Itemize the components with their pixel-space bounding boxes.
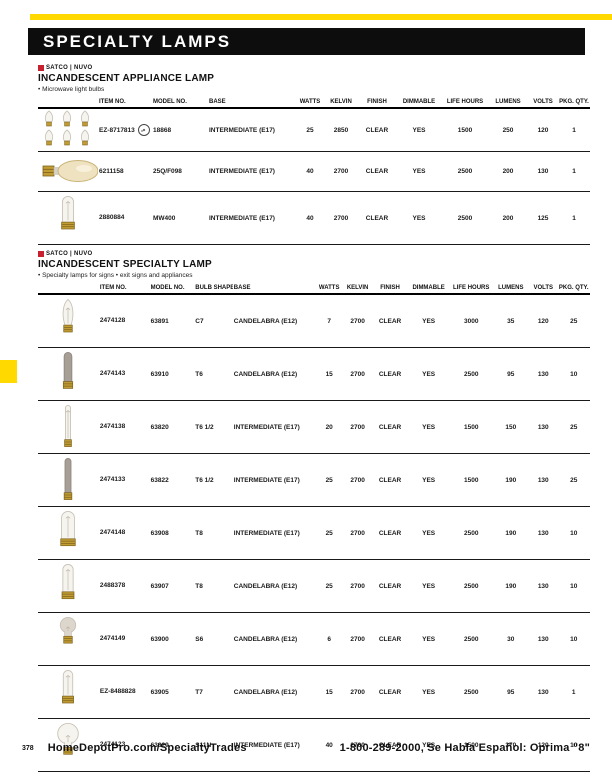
column-header-base: BASE (208, 97, 296, 108)
product-image-cell (38, 348, 99, 401)
cell-dimmable: YES (396, 152, 442, 192)
cell-life_hours: 2500 (450, 507, 493, 560)
certification-badge-icon (138, 124, 150, 136)
cell-lumens: 95 (493, 348, 530, 401)
product-image-cell (38, 613, 99, 666)
cell-life_hours: 2500 (450, 666, 493, 719)
column-header-model: MODEL NO. (150, 283, 195, 294)
cell-watts: 20 (316, 401, 342, 454)
cell-volts: 130 (529, 507, 557, 560)
cell-item: EZ-8488828 (99, 666, 150, 719)
cell-bulb_shape: T8 (194, 507, 233, 560)
section-incandescent-appliance-lamp: SATCO | NUVO INCANDESCENT APPLIANCE LAMP… (38, 64, 590, 245)
column-header-pkg_qty: PKG. QTY. (557, 283, 590, 294)
cell-dimmable: YES (407, 401, 450, 454)
item-number: 2474138 (100, 423, 125, 430)
cell-volts: 125 (528, 192, 558, 245)
cell-pkg_qty: 25 (557, 294, 590, 348)
cell-dimmable: YES (407, 507, 450, 560)
column-header-volts: VOLTS (529, 283, 557, 294)
cell-dimmable: YES (407, 560, 450, 613)
cell-pkg_qty: 1 (558, 192, 590, 245)
cell-item: 2474149 (99, 613, 150, 666)
item-number: 6211158 (99, 168, 124, 175)
cell-finish: CLEAR (358, 152, 396, 192)
column-header-dimmable: DIMMABLE (396, 97, 442, 108)
table-header-row: ITEM NO.MODEL NO.BASEWATTSKELVINFINISHDI… (38, 97, 590, 108)
cell-lumens: 150 (493, 401, 530, 454)
cell-finish: CLEAR (373, 560, 408, 613)
table-header-row: ITEM NO.MODEL NO.BULB SHAPEBASEWATTSKELV… (38, 283, 590, 294)
cell-dimmable: YES (407, 454, 450, 507)
column-header-model: MODEL NO. (152, 97, 208, 108)
cell-model: 25Q/F098 (152, 152, 208, 192)
cell-life_hours: 2500 (450, 560, 493, 613)
cell-bulb_shape: C7 (194, 294, 233, 348)
cell-dimmable: YES (396, 192, 442, 245)
cell-lumens: 190 (493, 507, 530, 560)
column-header-img (38, 97, 98, 108)
cell-dimmable: YES (407, 348, 450, 401)
column-header-kelvin: KELVIN (342, 283, 372, 294)
cell-life_hours: 2500 (442, 152, 488, 192)
product-image-cell (38, 454, 99, 507)
appliance-lamp-table: ITEM NO.MODEL NO.BASEWATTSKELVINFINISHDI… (38, 97, 590, 245)
cell-watts: 15 (316, 348, 342, 401)
section-bullet: • Microwave light bulbs (38, 85, 590, 94)
cell-lumens: 250 (488, 108, 528, 152)
cell-model: 63900 (150, 613, 195, 666)
cell-kelvin: 2700 (342, 454, 372, 507)
cell-finish: CLEAR (373, 666, 408, 719)
cell-watts: 7 (316, 294, 342, 348)
cell-base: CANDELABRA (E12) (233, 613, 316, 666)
cell-lumens: 95 (493, 666, 530, 719)
cell-base: CANDELABRA (E12) (233, 348, 316, 401)
table-row: 247413863820T6 1/2INTERMEDIATE (E17)2027… (38, 401, 590, 454)
cell-kelvin: 2700 (342, 507, 372, 560)
specialty-lamp-table: ITEM NO.MODEL NO.BULB SHAPEBASEWATTSKELV… (38, 283, 590, 772)
table-row: EZ-871781318868INTERMEDIATE (E17)252850C… (38, 108, 590, 152)
product-image-cell (38, 108, 98, 152)
cell-volts: 130 (529, 401, 557, 454)
cell-watts: 6 (316, 613, 342, 666)
item-number: 2474133 (100, 476, 125, 483)
cell-life_hours: 1500 (450, 401, 493, 454)
table-row: 247414863908T8INTERMEDIATE (E17)252700CL… (38, 507, 590, 560)
product-image-cell (38, 152, 98, 192)
cell-model: 18868 (152, 108, 208, 152)
cell-volts: 130 (529, 454, 557, 507)
cell-kelvin: 2700 (342, 666, 372, 719)
column-header-lumens: LUMENS (493, 283, 530, 294)
cell-kelvin: 2850 (324, 108, 358, 152)
cell-kelvin: 2700 (342, 348, 372, 401)
cell-finish: CLEAR (373, 507, 408, 560)
cell-finish: CLEAR (373, 613, 408, 666)
cell-kelvin: 2700 (342, 560, 372, 613)
section-heading: INCANDESCENT APPLIANCE LAMP (38, 73, 590, 85)
cell-dimmable: YES (407, 613, 450, 666)
cell-kelvin: 2700 (342, 294, 372, 348)
cell-item: EZ-8717813 (98, 108, 152, 152)
product-image-cell (38, 666, 99, 719)
bulb-image-t6-gray-tube (48, 349, 88, 397)
column-header-item: ITEM NO. (99, 283, 150, 294)
cell-base: INTERMEDIATE (E17) (233, 507, 316, 560)
bulb-image-mini-bulb-six-pack (39, 110, 97, 148)
cell-finish: CLEAR (373, 294, 408, 348)
cell-base: CANDELABRA (E12) (233, 294, 316, 348)
yellow-side-tab (0, 360, 17, 383)
cell-pkg_qty: 10 (557, 348, 590, 401)
column-header-watts: WATTS (316, 283, 342, 294)
cell-dimmable: YES (396, 108, 442, 152)
page-title: SPECIALTY LAMPS (28, 32, 231, 52)
table-row: EZ-848882863905T7CANDELABRA (E12)152700C… (38, 666, 590, 719)
cell-watts: 25 (316, 454, 342, 507)
cell-volts: 130 (529, 560, 557, 613)
cell-finish: CLEAR (358, 192, 396, 245)
bulb-image-appliance-tube-bulb (48, 193, 88, 241)
cell-bulb_shape: T6 (194, 348, 233, 401)
item-number: 2474143 (100, 370, 125, 377)
brand-line: SATCO | NUVO (38, 64, 590, 72)
cell-watts: 40 (296, 152, 324, 192)
cell-item: 6211158 (98, 152, 152, 192)
cell-life_hours: 2500 (450, 348, 493, 401)
cell-watts: 25 (296, 108, 324, 152)
table-row: 2880884MW400INTERMEDIATE (E17)402700CLEA… (38, 192, 590, 245)
table-row: 248837863907T8CANDELABRA (E12)252700CLEA… (38, 560, 590, 613)
product-image-cell (38, 294, 99, 348)
cell-watts: 25 (316, 560, 342, 613)
cell-pkg_qty: 1 (558, 108, 590, 152)
bulb-image-t7-tube (48, 667, 88, 715)
cell-kelvin: 2700 (324, 152, 358, 192)
cell-bulb_shape: S6 (194, 613, 233, 666)
item-number: EZ-8488828 (100, 688, 136, 695)
cell-lumens: 200 (488, 192, 528, 245)
cell-life_hours: 2500 (450, 613, 493, 666)
cell-base: CANDELABRA (E12) (233, 560, 316, 613)
cell-base: INTERMEDIATE (E17) (208, 108, 296, 152)
cell-model: 63908 (150, 507, 195, 560)
cell-item: 2488378 (99, 560, 150, 613)
cell-volts: 130 (529, 666, 557, 719)
cell-finish: CLEAR (358, 108, 396, 152)
cell-pkg_qty: 25 (557, 454, 590, 507)
brand-logo-icon (38, 65, 44, 71)
column-header-item: ITEM NO. (98, 97, 152, 108)
bulb-image-t65-thin-tube (48, 402, 88, 450)
bulb-image-t65-gray-thin-tube (48, 455, 88, 503)
cell-watts: 15 (316, 666, 342, 719)
cell-bulb_shape: T6 1/2 (194, 401, 233, 454)
bulb-image-t8-wide-tube (48, 508, 88, 556)
item-number: 2474148 (100, 529, 125, 536)
item-number: EZ-8717813 (99, 127, 135, 134)
cell-volts: 130 (528, 152, 558, 192)
cell-pkg_qty: 25 (557, 401, 590, 454)
item-number: 2474128 (100, 317, 125, 324)
column-header-volts: VOLTS (528, 97, 558, 108)
bulb-image-t8-tube (48, 561, 88, 609)
cell-base: INTERMEDIATE (E17) (233, 454, 316, 507)
cell-item: 2474128 (99, 294, 150, 348)
brand-name: SATCO | NUVO (46, 65, 93, 71)
cell-life_hours: 2500 (442, 192, 488, 245)
cell-item: 2474148 (99, 507, 150, 560)
cell-lumens: 30 (493, 613, 530, 666)
cell-lumens: 200 (488, 152, 528, 192)
cell-item: 2474138 (99, 401, 150, 454)
cell-bulb_shape: T6 1/2 (194, 454, 233, 507)
page-number: 378 (22, 745, 34, 752)
section-bullet: • Specialty lamps for signs • exit signs… (38, 271, 590, 280)
product-image-cell (38, 401, 99, 454)
cell-volts: 120 (529, 294, 557, 348)
cell-base: INTERMEDIATE (E17) (233, 401, 316, 454)
cell-model: 63907 (150, 560, 195, 613)
page-title-bar: SPECIALTY LAMPS (28, 28, 585, 55)
cell-kelvin: 2700 (342, 613, 372, 666)
cell-base: INTERMEDIATE (E17) (208, 192, 296, 245)
cell-base: CANDELABRA (E12) (233, 666, 316, 719)
cell-dimmable: YES (407, 666, 450, 719)
cell-pkg_qty: 10 (557, 560, 590, 613)
table-row: 621115825Q/F098INTERMEDIATE (E17)402700C… (38, 152, 590, 192)
cell-finish: CLEAR (373, 401, 408, 454)
cell-life_hours: 1500 (442, 108, 488, 152)
cell-life_hours: 1500 (450, 454, 493, 507)
cell-model: MW400 (152, 192, 208, 245)
column-header-finish: FINISH (358, 97, 396, 108)
cell-watts: 25 (316, 507, 342, 560)
bulb-image-s6-round (48, 614, 88, 662)
brand-line: SATCO | NUVO (38, 250, 590, 258)
brand-logo-icon (38, 251, 44, 257)
cell-volts: 130 (529, 348, 557, 401)
column-header-watts: WATTS (296, 97, 324, 108)
section-incandescent-specialty-lamp: SATCO | NUVO INCANDESCENT SPECIALTY LAMP… (38, 250, 590, 772)
cell-bulb_shape: T8 (194, 560, 233, 613)
product-image-cell (38, 507, 99, 560)
item-number: 2488378 (100, 582, 125, 589)
cell-model: 63891 (150, 294, 195, 348)
brand-name: SATCO | NUVO (46, 251, 93, 257)
cell-pkg_qty: 1 (557, 666, 590, 719)
cell-item: 2880884 (98, 192, 152, 245)
cell-pkg_qty: 10 (557, 507, 590, 560)
cell-kelvin: 2700 (324, 192, 358, 245)
section-heading: INCANDESCENT SPECIALTY LAMP (38, 259, 590, 271)
page-footer: 378 HomeDepotPro.com/SpecialtyTrades 1-8… (22, 740, 590, 756)
bulb-image-c7-torpedo (48, 296, 88, 344)
table-row: 247412863891C7CANDELABRA (E12)72700CLEAR… (38, 294, 590, 348)
cell-lumens: 35 (493, 294, 530, 348)
cell-item: 2474143 (99, 348, 150, 401)
column-header-lumens: LUMENS (488, 97, 528, 108)
cell-model: 63905 (150, 666, 195, 719)
cell-watts: 40 (296, 192, 324, 245)
bulb-image-horizontal-amber-bulb (39, 158, 98, 184)
item-number: 2474149 (100, 635, 125, 642)
product-image-cell (38, 192, 98, 245)
cell-volts: 120 (528, 108, 558, 152)
table-row: 247414363910T6CANDELABRA (E12)152700CLEA… (38, 348, 590, 401)
cell-dimmable: YES (407, 294, 450, 348)
cell-finish: CLEAR (373, 454, 408, 507)
item-number: 2880884 (99, 214, 124, 221)
column-header-finish: FINISH (373, 283, 408, 294)
footer-website: HomeDepotPro.com/SpecialtyTrades (48, 742, 247, 754)
cell-kelvin: 2700 (342, 401, 372, 454)
column-header-kelvin: KELVIN (324, 97, 358, 108)
cell-pkg_qty: 10 (557, 613, 590, 666)
cell-model: 63822 (150, 454, 195, 507)
cell-pkg_qty: 1 (558, 152, 590, 192)
column-header-dimmable: DIMMABLE (407, 283, 450, 294)
column-header-base: BASE (233, 283, 316, 294)
column-header-life_hours: LIFE HOURS (450, 283, 493, 294)
cell-volts: 130 (529, 613, 557, 666)
cell-base: INTERMEDIATE (E17) (208, 152, 296, 192)
cell-model: 63820 (150, 401, 195, 454)
product-image-cell (38, 560, 99, 613)
top-yellow-rule (30, 14, 612, 20)
column-header-life_hours: LIFE HOURS (442, 97, 488, 108)
cell-model: 63910 (150, 348, 195, 401)
table-row: 247414963900S6CANDELABRA (E12)62700CLEAR… (38, 613, 590, 666)
cell-item: 2474133 (99, 454, 150, 507)
table-row: 247413363822T6 1/2INTERMEDIATE (E17)2527… (38, 454, 590, 507)
column-header-bulb_shape: BULB SHAPE (194, 283, 233, 294)
cell-bulb_shape: T7 (194, 666, 233, 719)
column-header-pkg_qty: PKG. QTY. (558, 97, 590, 108)
footer-phone-line: 1-800-289-2000, Se Habla Español: Oprima… (340, 742, 590, 754)
column-header-img (38, 283, 99, 294)
cell-lumens: 190 (493, 454, 530, 507)
cell-life_hours: 3000 (450, 294, 493, 348)
cell-finish: CLEAR (373, 348, 408, 401)
cell-lumens: 190 (493, 560, 530, 613)
